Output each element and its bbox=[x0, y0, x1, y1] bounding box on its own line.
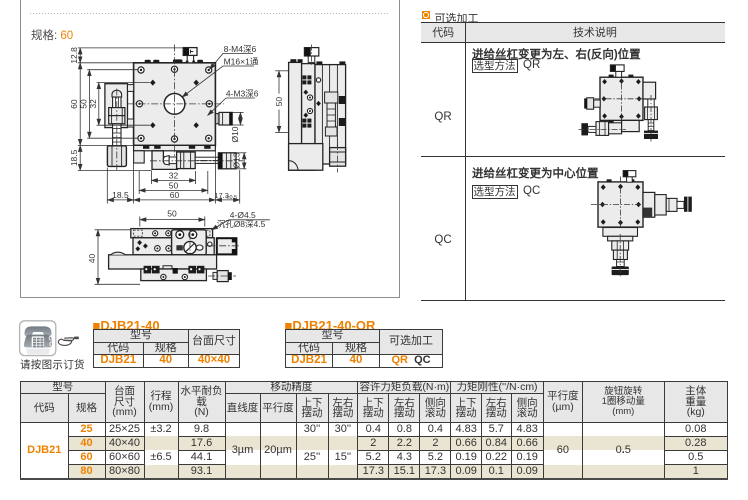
svg-text:8-M4深6: 8-M4深6 bbox=[224, 44, 257, 54]
svg-text:18.5: 18.5 bbox=[112, 190, 129, 200]
svg-text:32: 32 bbox=[88, 99, 98, 109]
svg-text:40: 40 bbox=[87, 254, 97, 264]
svg-text:沉孔Ø8深4.5: 沉孔Ø8深4.5 bbox=[217, 219, 266, 229]
svg-text:32: 32 bbox=[169, 171, 179, 181]
svg-text:Ø13: Ø13 bbox=[232, 152, 242, 168]
svg-text:60: 60 bbox=[170, 190, 180, 200]
svg-text:18.5: 18.5 bbox=[69, 149, 79, 166]
svg-text:M16×1通: M16×1通 bbox=[224, 57, 259, 67]
svg-text:12.8: 12.8 bbox=[69, 47, 79, 64]
svg-text:50: 50 bbox=[274, 97, 284, 107]
svg-text:±0.5: ±0.5 bbox=[226, 195, 237, 201]
svg-text:4-M3深6: 4-M3深6 bbox=[226, 89, 259, 99]
svg-text:50: 50 bbox=[167, 209, 177, 219]
svg-text:Ø10: Ø10 bbox=[230, 126, 240, 142]
